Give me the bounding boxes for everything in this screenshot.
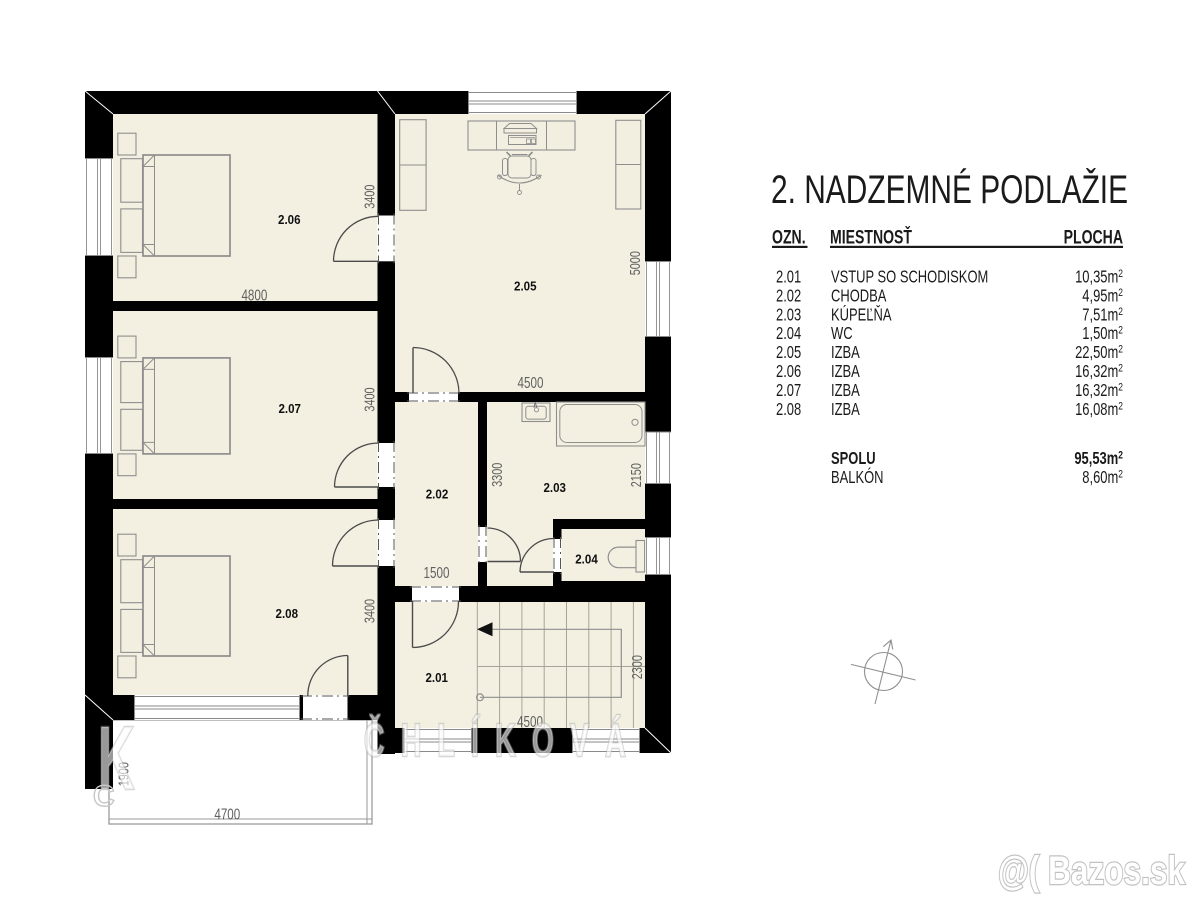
svg-text:2150: 2150	[629, 463, 645, 487]
svg-text:4800: 4800	[241, 288, 267, 305]
svg-text:16,08m: 16,08m	[1075, 399, 1118, 419]
svg-text:2.03: 2.03	[543, 480, 566, 495]
svg-text:7,51m: 7,51m	[1082, 304, 1118, 324]
svg-text:IZBA: IZBA	[831, 361, 860, 381]
svg-text:10,35m: 10,35m	[1075, 267, 1118, 287]
svg-text:2.05: 2.05	[514, 279, 537, 294]
svg-text:BALKÓN: BALKÓN	[831, 466, 884, 487]
svg-text:2: 2	[1118, 306, 1123, 318]
svg-text:IZBA: IZBA	[831, 342, 860, 362]
svg-text:KÚPEĽŇA: KÚPEĽŇA	[831, 303, 892, 324]
svg-text:2300: 2300	[630, 655, 646, 679]
svg-text:2: 2	[1118, 363, 1123, 375]
svg-text:2: 2	[1118, 325, 1123, 337]
svg-text:2.04: 2.04	[776, 323, 801, 343]
svg-text:2.04: 2.04	[575, 552, 598, 567]
svg-text:2.05: 2.05	[776, 342, 801, 362]
svg-text:2: 2	[1118, 287, 1123, 299]
svg-text:4,95m: 4,95m	[1082, 285, 1118, 305]
svg-text:IZBA: IZBA	[831, 399, 860, 419]
svg-text:2: 2	[1118, 450, 1123, 462]
svg-text:1500: 1500	[424, 565, 450, 582]
svg-text:4500: 4500	[518, 375, 544, 392]
svg-text:2: 2	[1118, 469, 1123, 481]
svg-text:2: 2	[1118, 344, 1123, 356]
svg-text:2.06: 2.06	[278, 212, 301, 227]
svg-text:2.07: 2.07	[278, 401, 301, 416]
svg-text:3300: 3300	[490, 463, 506, 487]
svg-text:@( Bazos.sk: @( Bazos.sk	[998, 849, 1186, 893]
svg-text:ČHLÍKOVÁ: ČHLÍKOVÁ	[364, 713, 642, 767]
svg-text:2: 2	[1118, 400, 1123, 412]
svg-text:8,60m: 8,60m	[1082, 467, 1118, 487]
svg-text:4700: 4700	[214, 807, 240, 824]
svg-text:WC: WC	[831, 323, 853, 343]
svg-text:2.02: 2.02	[776, 285, 801, 305]
svg-text:SPOLU: SPOLU	[831, 448, 876, 468]
svg-text:CHODBA: CHODBA	[831, 285, 887, 305]
svg-text:C: C	[93, 780, 115, 813]
svg-text:2: 2	[1118, 381, 1123, 393]
svg-text:2.07: 2.07	[776, 380, 801, 400]
svg-text:95,53m: 95,53m	[1074, 448, 1118, 468]
svg-text:2. NADZEMNÉ PODLAŽIE: 2. NADZEMNÉ PODLAŽIE	[771, 167, 1128, 212]
svg-text:16,32m: 16,32m	[1075, 380, 1118, 400]
svg-text:5000: 5000	[628, 251, 644, 275]
svg-text:2: 2	[1118, 268, 1123, 280]
svg-text:MIESTNOSŤ: MIESTNOSŤ	[830, 227, 912, 249]
svg-text:3400: 3400	[362, 185, 378, 209]
svg-text:PLOCHA: PLOCHA	[1064, 228, 1124, 249]
svg-text:2.02: 2.02	[426, 487, 449, 502]
svg-text:2.08: 2.08	[776, 399, 801, 419]
svg-text:2.01: 2.01	[776, 267, 801, 287]
svg-text:2.01: 2.01	[425, 670, 448, 685]
svg-text:OZN.: OZN.	[772, 228, 806, 249]
svg-text:3400: 3400	[362, 387, 378, 411]
svg-text:22,50m: 22,50m	[1075, 342, 1118, 362]
svg-text:2.03: 2.03	[776, 304, 801, 324]
svg-text:16,32m: 16,32m	[1075, 361, 1118, 381]
svg-text:2.06: 2.06	[776, 361, 801, 381]
svg-text:3400: 3400	[362, 599, 378, 623]
svg-text:2.08: 2.08	[276, 606, 299, 621]
svg-text:1,50m: 1,50m	[1082, 323, 1118, 343]
svg-text:IZBA: IZBA	[831, 380, 860, 400]
svg-text:VSTUP SO SCHODISKOM: VSTUP SO SCHODISKOM	[831, 267, 988, 287]
